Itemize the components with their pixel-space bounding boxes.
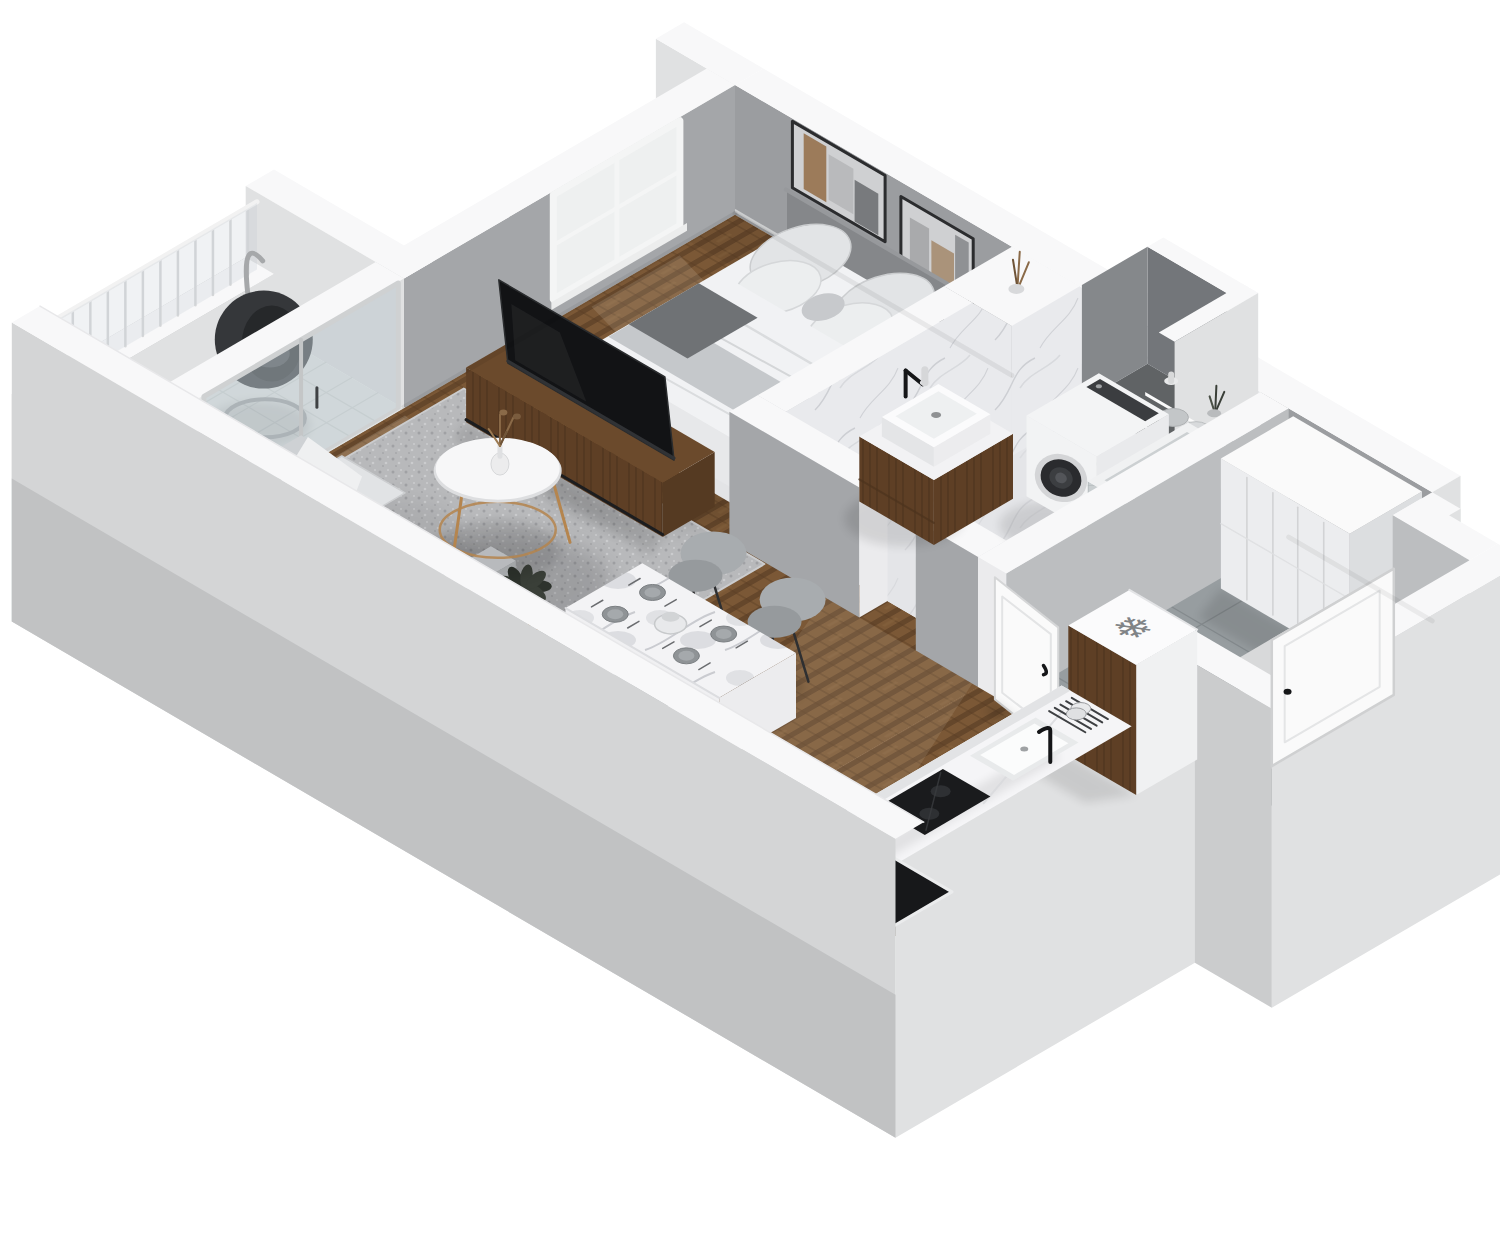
floor-plan-stage: ❄: [0, 0, 1500, 1258]
plate-inner: [716, 629, 732, 639]
plate-inner: [678, 651, 694, 661]
sink-drain: [1020, 746, 1028, 751]
plate-inner: [607, 609, 623, 619]
sink-drain: [931, 412, 941, 418]
vase-small: [1008, 284, 1024, 294]
entrance-door-handle: [1284, 689, 1292, 695]
cooktop-burner: [931, 785, 951, 797]
dried-bloom: [513, 414, 521, 420]
shelf-plant: [1215, 386, 1216, 411]
center-bowl-top: [662, 612, 680, 622]
shelf-plant-pot: [1207, 409, 1221, 417]
scene-root: ❄: [12, 22, 1500, 1137]
dried-bloom: [499, 410, 507, 416]
isometric-floor-plan: ❄: [0, 0, 1500, 1258]
plate: [1066, 708, 1086, 720]
plate-inner: [645, 587, 661, 597]
washer-knob: [1096, 384, 1102, 388]
